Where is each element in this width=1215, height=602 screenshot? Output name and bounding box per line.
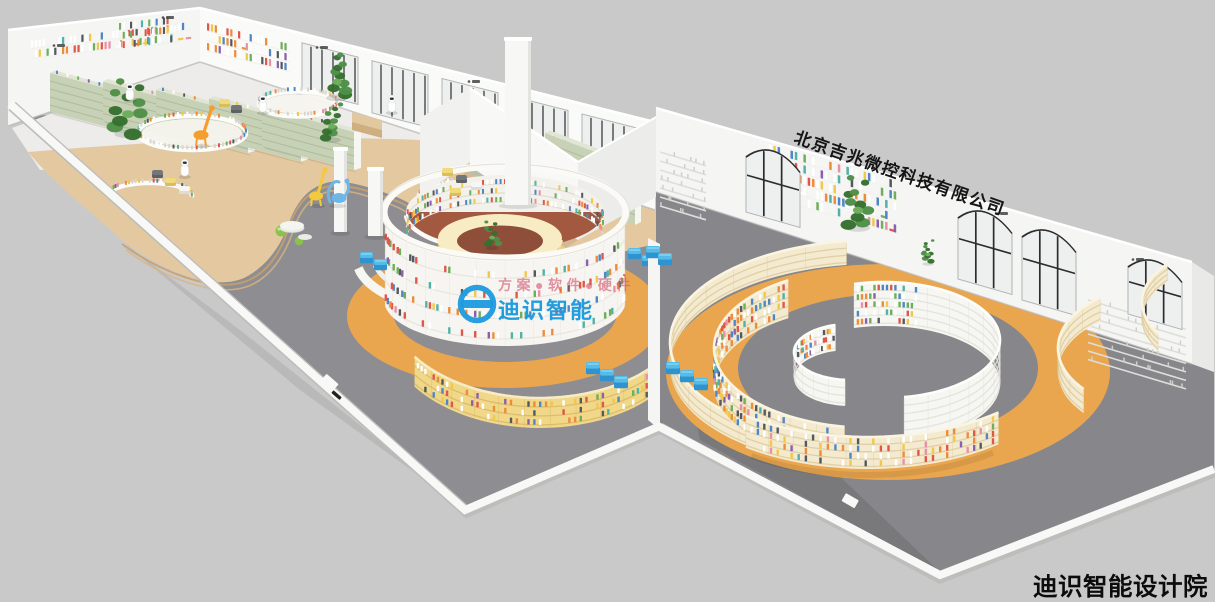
blue-seat — [658, 253, 672, 265]
blue-seat — [360, 252, 373, 263]
blue-seat — [646, 246, 660, 258]
blue-seat — [680, 370, 694, 382]
blue-seat — [694, 378, 708, 390]
wall-sign — [53, 44, 65, 47]
wall-sign — [316, 46, 328, 49]
stool — [450, 188, 461, 196]
library-3d-render: 北京吉兆微控科技有限公司 方案●软件●硬件 迪识智能 迪识智能设计院 — [0, 0, 1215, 602]
east-wall — [1192, 262, 1214, 372]
blue-seat — [600, 369, 614, 381]
stool — [219, 99, 230, 107]
watermark-studio: 迪识智能设计院 — [1033, 572, 1208, 601]
blue-seat — [666, 362, 680, 374]
blue-seat — [374, 259, 387, 270]
reading-ring — [137, 112, 247, 153]
stool — [442, 168, 453, 176]
stool — [456, 175, 467, 183]
render-canvas: 北京吉兆微控科技有限公司 方案●软件●硬件 迪识智能 迪识智能设计院 — [0, 0, 1215, 602]
blue-seat — [614, 376, 628, 388]
blue-seat — [586, 362, 600, 374]
wall-sign — [468, 80, 480, 83]
stool — [152, 170, 163, 178]
wall-sign — [1132, 258, 1144, 261]
stone-seat — [280, 221, 304, 230]
stool — [471, 182, 482, 190]
watermark-brand-center: 迪识智能 — [498, 298, 594, 323]
wall-sign — [162, 16, 174, 19]
blue-seat — [628, 248, 641, 259]
stone-seat — [298, 234, 312, 240]
stool — [231, 105, 242, 113]
west-low-wall — [648, 238, 660, 430]
stool — [165, 178, 176, 186]
stool — [179, 186, 190, 194]
watermark-brand-tagline: 方案●软件●硬件 — [498, 277, 635, 293]
